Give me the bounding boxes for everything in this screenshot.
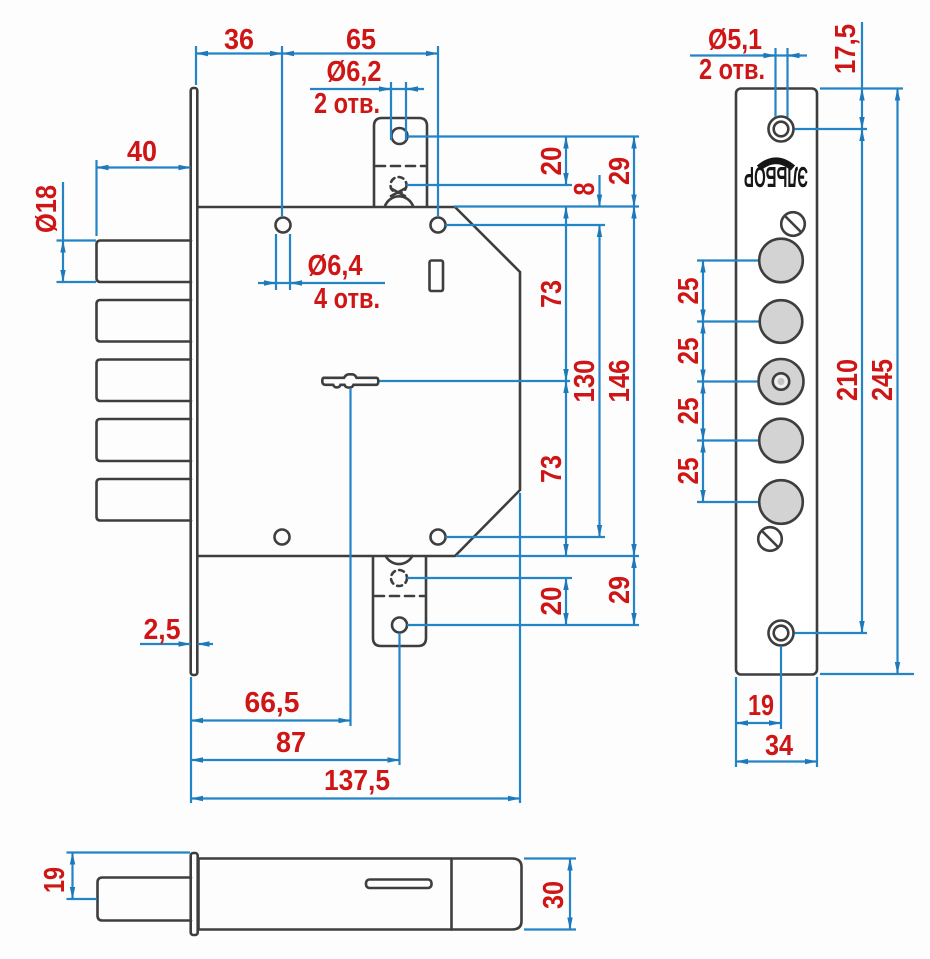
svg-text:2 отв.: 2 отв. <box>314 88 380 120</box>
svg-text:65: 65 <box>346 24 376 56</box>
svg-text:2,5: 2,5 <box>144 614 181 646</box>
svg-text:34: 34 <box>765 730 793 762</box>
svg-text:4 отв.: 4 отв. <box>314 283 380 315</box>
svg-text:73: 73 <box>536 455 568 483</box>
svg-text:20: 20 <box>536 147 568 176</box>
svg-text:25: 25 <box>673 338 705 365</box>
svg-text:146: 146 <box>604 360 636 403</box>
svg-text:73: 73 <box>536 280 568 308</box>
svg-text:36: 36 <box>224 24 254 56</box>
svg-text:Ø6,2: Ø6,2 <box>327 56 382 88</box>
svg-text:17,5: 17,5 <box>830 24 862 74</box>
svg-text:66,5: 66,5 <box>245 687 300 719</box>
svg-text:245: 245 <box>867 359 899 401</box>
svg-text:2 отв.: 2 отв. <box>699 54 765 86</box>
svg-text:20: 20 <box>536 587 568 616</box>
svg-text:87: 87 <box>276 727 306 759</box>
svg-text:19: 19 <box>748 690 774 722</box>
svg-text:40: 40 <box>127 136 157 168</box>
svg-text:25: 25 <box>673 458 705 485</box>
svg-text:Ø18: Ø18 <box>31 185 63 233</box>
svg-text:25: 25 <box>673 278 705 305</box>
svg-text:210: 210 <box>832 359 864 401</box>
svg-text:137,5: 137,5 <box>324 765 390 797</box>
svg-text:Ø5,1: Ø5,1 <box>708 24 762 56</box>
svg-text:29: 29 <box>604 157 636 185</box>
svg-text:25: 25 <box>673 398 705 425</box>
svg-text:Ø6,4: Ø6,4 <box>308 250 363 282</box>
svg-text:ЭЛЬБОР: ЭЛЬБОР <box>744 160 808 192</box>
svg-text:8: 8 <box>569 183 601 196</box>
svg-text:19: 19 <box>39 867 71 893</box>
svg-text:130: 130 <box>569 360 601 403</box>
svg-text:30: 30 <box>538 881 570 909</box>
svg-text:29: 29 <box>604 576 636 604</box>
